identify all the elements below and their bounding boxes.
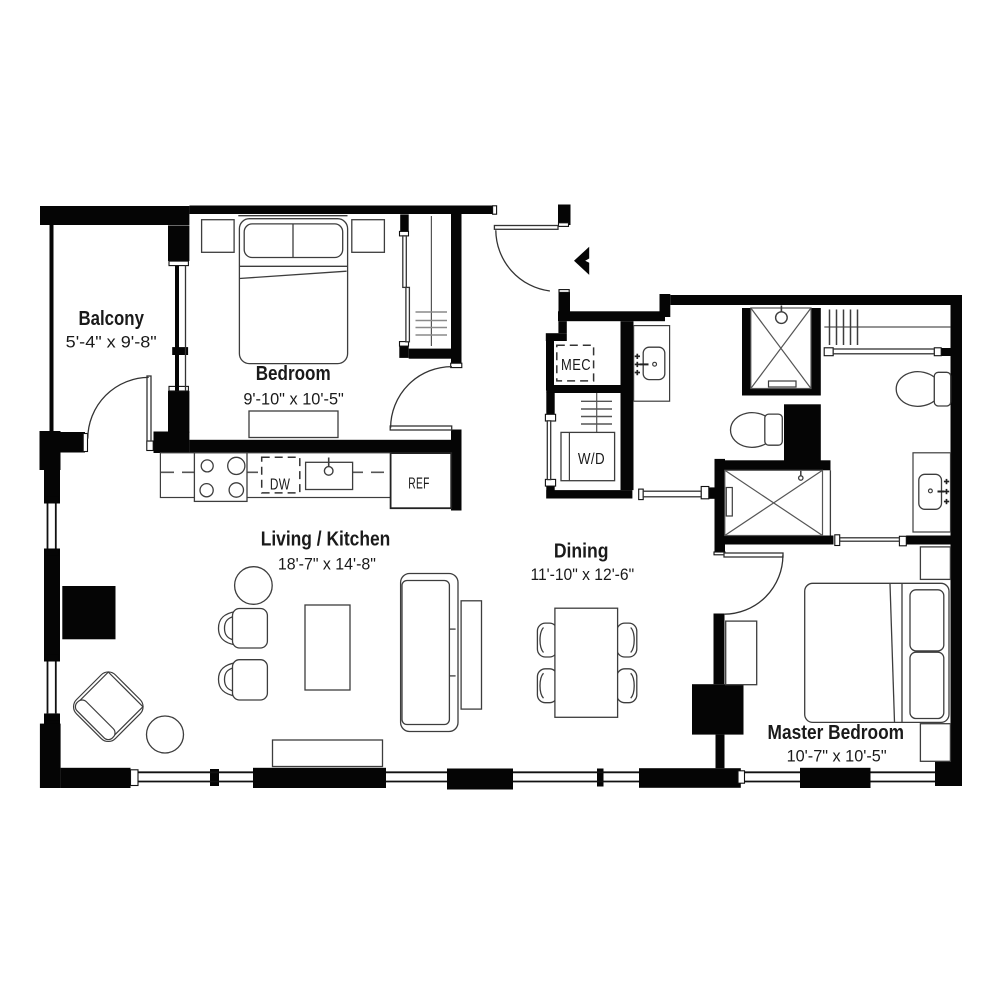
svg-text:11'-10" x 12'-6": 11'-10" x 12'-6" [530,565,634,584]
svg-text:REF: REF [408,476,430,493]
svg-text:Master Bedroom: Master Bedroom [768,722,905,744]
svg-text:18'-7" x 14'-8": 18'-7" x 14'-8" [278,554,376,573]
svg-text:Living / Kitchen: Living / Kitchen [261,529,391,551]
svg-text:10'-7" x 10'-5": 10'-7" x 10'-5" [787,746,887,765]
svg-text:Bedroom: Bedroom [256,363,331,385]
svg-text:Balcony: Balcony [78,308,144,330]
svg-text:9'-10" x 10'-5": 9'-10" x 10'-5" [243,389,344,408]
svg-text:MEC: MEC [561,357,591,374]
svg-text:DW: DW [270,476,291,493]
svg-text:5'-4" x 9'-8": 5'-4" x 9'-8" [66,333,157,352]
svg-text:W/D: W/D [578,451,605,468]
svg-text:Dining: Dining [554,541,609,563]
